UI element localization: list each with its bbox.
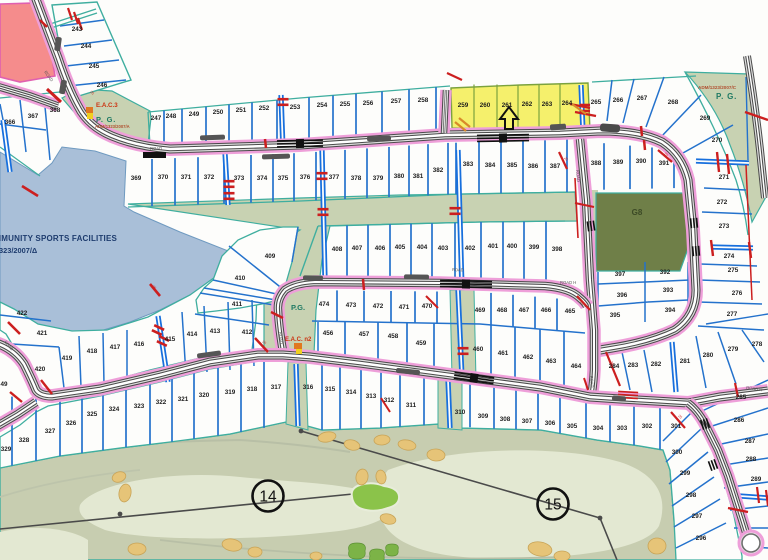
svg-text:406: 406: [375, 245, 386, 252]
svg-text:326: 326: [66, 420, 77, 427]
svg-text:473: 473: [346, 302, 357, 309]
svg-text:383: 383: [463, 161, 474, 168]
svg-text:415: 415: [165, 336, 176, 343]
svg-text:370: 370: [158, 174, 169, 181]
svg-text:463: 463: [546, 358, 557, 365]
svg-text:296: 296: [696, 535, 707, 542]
svg-text:250: 250: [213, 109, 224, 116]
svg-text:382: 382: [433, 167, 444, 174]
svg-text:301: 301: [671, 423, 682, 430]
svg-text:400: 400: [507, 243, 518, 250]
svg-text:376: 376: [300, 174, 311, 181]
svg-text:392: 392: [660, 269, 671, 276]
svg-text:413: 413: [210, 328, 221, 335]
svg-text:P.G.: P.G.: [291, 303, 305, 312]
svg-text:254: 254: [317, 102, 328, 109]
svg-text:258: 258: [418, 97, 429, 104]
svg-text:321: 321: [178, 396, 189, 403]
svg-text:ROAD: ROAD: [575, 170, 581, 182]
svg-text:458: 458: [388, 333, 399, 340]
svg-text:465: 465: [565, 308, 576, 315]
svg-text:421: 421: [37, 330, 48, 337]
svg-text:286: 286: [734, 417, 745, 424]
svg-text:COMMUNITY SPORTS FACILITIES: COMMUNITY SPORTS FACILITIES: [0, 234, 118, 243]
svg-text:260: 260: [480, 102, 491, 109]
svg-text:422: 422: [17, 310, 28, 317]
svg-text:468: 468: [497, 307, 508, 314]
svg-text:419: 419: [62, 355, 73, 362]
svg-text:255: 255: [340, 101, 351, 108]
svg-text:49: 49: [0, 381, 8, 388]
svg-text:372: 372: [204, 174, 215, 181]
svg-text:322: 322: [156, 399, 167, 406]
svg-text:282: 282: [651, 361, 662, 368]
svg-text:388: 388: [591, 160, 602, 167]
svg-text:310: 310: [455, 409, 466, 416]
svg-text:416: 416: [134, 341, 145, 348]
svg-text:474: 474: [319, 301, 330, 308]
svg-text:373: 373: [234, 175, 245, 182]
svg-text:319: 319: [225, 389, 236, 396]
svg-text:251: 251: [236, 107, 247, 114]
svg-text:329: 329: [1, 446, 12, 453]
svg-text:472: 472: [373, 303, 384, 310]
svg-text:277: 277: [727, 311, 738, 318]
svg-text:263: 263: [542, 101, 553, 108]
svg-text:G8: G8: [632, 208, 643, 217]
svg-text:466: 466: [541, 307, 552, 314]
svg-text:417: 417: [110, 344, 121, 351]
svg-text:264: 264: [562, 100, 573, 107]
svg-text:302: 302: [642, 423, 653, 430]
svg-text:395: 395: [610, 312, 621, 319]
svg-text:305: 305: [567, 423, 578, 430]
svg-text:469: 469: [475, 307, 486, 314]
svg-text:402: 402: [465, 245, 476, 252]
svg-text:ROAD: ROAD: [452, 267, 464, 272]
svg-text:265: 265: [591, 99, 602, 106]
svg-text:317: 317: [271, 384, 282, 391]
svg-text:P. G.: P. G.: [96, 115, 116, 124]
svg-text:387: 387: [550, 163, 561, 170]
svg-text:380: 380: [394, 173, 405, 180]
svg-text:401: 401: [488, 243, 499, 250]
svg-text:266: 266: [613, 97, 624, 104]
svg-text:256: 256: [363, 100, 374, 107]
svg-text:261: 261: [502, 102, 513, 109]
svg-text:369: 369: [131, 175, 142, 182]
svg-text:279: 279: [728, 346, 739, 353]
svg-text:404: 404: [417, 244, 428, 251]
svg-text:394: 394: [665, 307, 676, 314]
svg-text:371: 371: [181, 174, 192, 181]
svg-text:281: 281: [680, 358, 691, 365]
svg-text:15: 15: [544, 497, 561, 514]
svg-text:459: 459: [416, 340, 427, 347]
svg-text:312: 312: [384, 397, 395, 404]
svg-text:377: 377: [329, 174, 340, 181]
svg-text:252: 252: [259, 105, 270, 112]
svg-text:248: 248: [166, 113, 177, 120]
svg-text:368: 368: [50, 107, 61, 114]
svg-text:303: 303: [617, 425, 628, 432]
svg-text:313: 313: [366, 393, 377, 400]
svg-text:467: 467: [519, 307, 530, 314]
svg-text:324: 324: [109, 406, 120, 413]
svg-text:297: 297: [692, 513, 703, 520]
svg-text:420: 420: [35, 366, 46, 373]
svg-text:405: 405: [395, 244, 406, 251]
svg-text:280: 280: [703, 352, 714, 359]
svg-text:289: 289: [751, 476, 762, 483]
svg-text:307: 307: [522, 418, 533, 425]
svg-text:367: 367: [28, 113, 39, 120]
svg-text:470: 470: [422, 303, 433, 310]
svg-text:285: 285: [736, 394, 747, 401]
svg-text:247: 247: [151, 115, 162, 122]
svg-text:328: 328: [19, 437, 30, 444]
svg-text:457: 457: [359, 331, 370, 338]
svg-text:389: 389: [613, 159, 624, 166]
svg-text:273: 273: [719, 223, 730, 230]
svg-text:306: 306: [545, 420, 556, 427]
svg-text:316: 316: [303, 384, 314, 391]
svg-text:391: 391: [659, 160, 670, 167]
svg-text:314: 314: [346, 389, 357, 396]
svg-text:245: 245: [89, 63, 100, 70]
svg-text:320: 320: [199, 392, 210, 399]
svg-text:300: 300: [672, 449, 683, 456]
svg-text:325: 325: [87, 411, 98, 418]
svg-text:384: 384: [485, 162, 496, 169]
svg-text:375: 375: [278, 175, 289, 182]
svg-text:379: 379: [373, 175, 384, 182]
svg-text:381: 381: [413, 173, 424, 180]
svg-text:E.A.C. n2: E.A.C. n2: [285, 337, 312, 343]
svg-text:304: 304: [593, 425, 604, 432]
svg-text:461: 461: [498, 350, 509, 357]
svg-text:262: 262: [522, 101, 533, 108]
svg-text:288: 288: [746, 456, 757, 463]
svg-text:323: 323: [134, 403, 145, 410]
svg-text:ROAD H: ROAD H: [560, 280, 576, 285]
svg-text:272: 272: [717, 199, 728, 206]
svg-text:393: 393: [663, 287, 674, 294]
svg-text:283: 283: [628, 362, 639, 369]
svg-text:249: 249: [189, 111, 200, 118]
svg-text:ADM/1323/2007/A: ADM/1323/2007/A: [95, 124, 130, 129]
svg-text:271: 271: [719, 174, 730, 181]
svg-text:323/2007/Δ: 323/2007/Δ: [0, 246, 38, 255]
svg-text:ROAD: ROAD: [589, 376, 595, 388]
svg-text:418: 418: [87, 348, 98, 355]
svg-text:309: 309: [478, 413, 489, 420]
svg-text:374: 374: [257, 175, 268, 182]
svg-text:311: 311: [406, 402, 417, 409]
svg-text:299: 299: [680, 470, 691, 477]
svg-text:270: 270: [712, 137, 723, 144]
svg-text:274: 274: [724, 253, 735, 260]
svg-text:396: 396: [617, 292, 628, 299]
svg-text:471: 471: [399, 304, 410, 311]
svg-text:403: 403: [438, 245, 449, 252]
svg-text:253: 253: [290, 104, 301, 111]
svg-text:267: 267: [637, 95, 648, 102]
svg-text:275: 275: [728, 267, 739, 274]
svg-text:246: 246: [97, 82, 108, 89]
svg-text:276: 276: [732, 290, 743, 297]
svg-text:408: 408: [332, 246, 343, 253]
svg-text:411: 411: [232, 301, 243, 308]
svg-text:269: 269: [700, 115, 711, 122]
svg-text:244: 244: [81, 43, 92, 50]
svg-text:414: 414: [187, 331, 198, 338]
svg-text:14: 14: [259, 489, 277, 506]
svg-text:E.A.C.3: E.A.C.3: [96, 102, 118, 109]
svg-text:P. G.: P. G.: [716, 92, 737, 101]
svg-text:259: 259: [458, 102, 469, 109]
svg-text:410: 410: [235, 275, 246, 282]
svg-text:407: 407: [352, 245, 363, 252]
svg-text:399: 399: [529, 244, 540, 251]
svg-text:278: 278: [752, 341, 763, 348]
svg-text:315: 315: [325, 386, 336, 393]
svg-text:464: 464: [571, 363, 582, 370]
svg-text:397: 397: [615, 271, 626, 278]
svg-text:308: 308: [500, 416, 511, 423]
svg-text:243: 243: [72, 26, 83, 33]
svg-text:460: 460: [473, 346, 484, 353]
svg-text:366: 366: [5, 119, 16, 126]
svg-text:398: 398: [552, 246, 563, 253]
svg-text:298: 298: [686, 492, 697, 499]
svg-text:ADM/1323/2007/C: ADM/1323/2007/C: [698, 85, 737, 90]
svg-text:ROAD: ROAD: [278, 332, 284, 344]
svg-text:257: 257: [391, 98, 402, 105]
svg-text:386: 386: [528, 163, 539, 170]
svg-text:462: 462: [523, 354, 534, 361]
svg-text:ROAD: ROAD: [150, 146, 162, 151]
svg-text:318: 318: [247, 386, 258, 393]
svg-text:412: 412: [242, 329, 253, 336]
svg-text:409: 409: [265, 253, 276, 260]
svg-text:378: 378: [351, 175, 362, 182]
svg-text:385: 385: [507, 162, 518, 169]
svg-text:456: 456: [323, 330, 334, 337]
svg-text:327: 327: [45, 428, 56, 435]
svg-text:287: 287: [745, 438, 756, 445]
svg-text:268: 268: [668, 99, 679, 106]
svg-text:390: 390: [636, 158, 647, 165]
